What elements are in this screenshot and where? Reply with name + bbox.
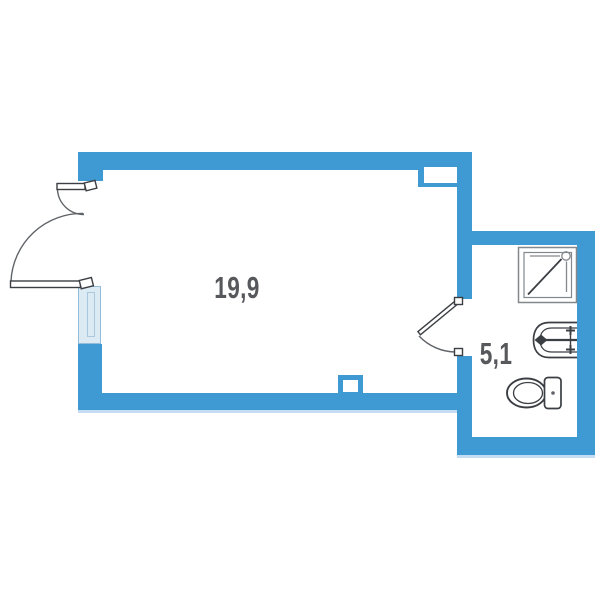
bathroom-door-leaf xyxy=(418,300,458,334)
bathroom-door-arc xyxy=(419,336,456,352)
sink-icon xyxy=(534,323,578,358)
entrance-small-leaf-arc xyxy=(58,190,85,215)
entrance-door xyxy=(11,180,97,288)
entrance-small-leaf xyxy=(57,184,85,190)
floor-plan: 19,9 5,1 xyxy=(0,0,600,600)
bathroom-door-jamb-top xyxy=(455,298,463,305)
entrance-large-leaf-hinge xyxy=(79,278,93,289)
entrance-small-leaf-hinge xyxy=(84,180,97,190)
main-room-area-label: 19,9 xyxy=(210,272,264,303)
entrance-large-leaf-arc xyxy=(11,213,84,281)
entrance-large-leaf xyxy=(11,281,81,288)
plan-linework xyxy=(0,0,600,600)
bathroom-area-label: 5,1 xyxy=(472,338,520,369)
toilet-tank-button xyxy=(551,391,555,395)
toilet-icon xyxy=(507,378,561,409)
shower-icon xyxy=(519,248,577,303)
bathroom-door xyxy=(418,298,463,356)
bathroom-door-jamb-bottom xyxy=(455,349,463,356)
